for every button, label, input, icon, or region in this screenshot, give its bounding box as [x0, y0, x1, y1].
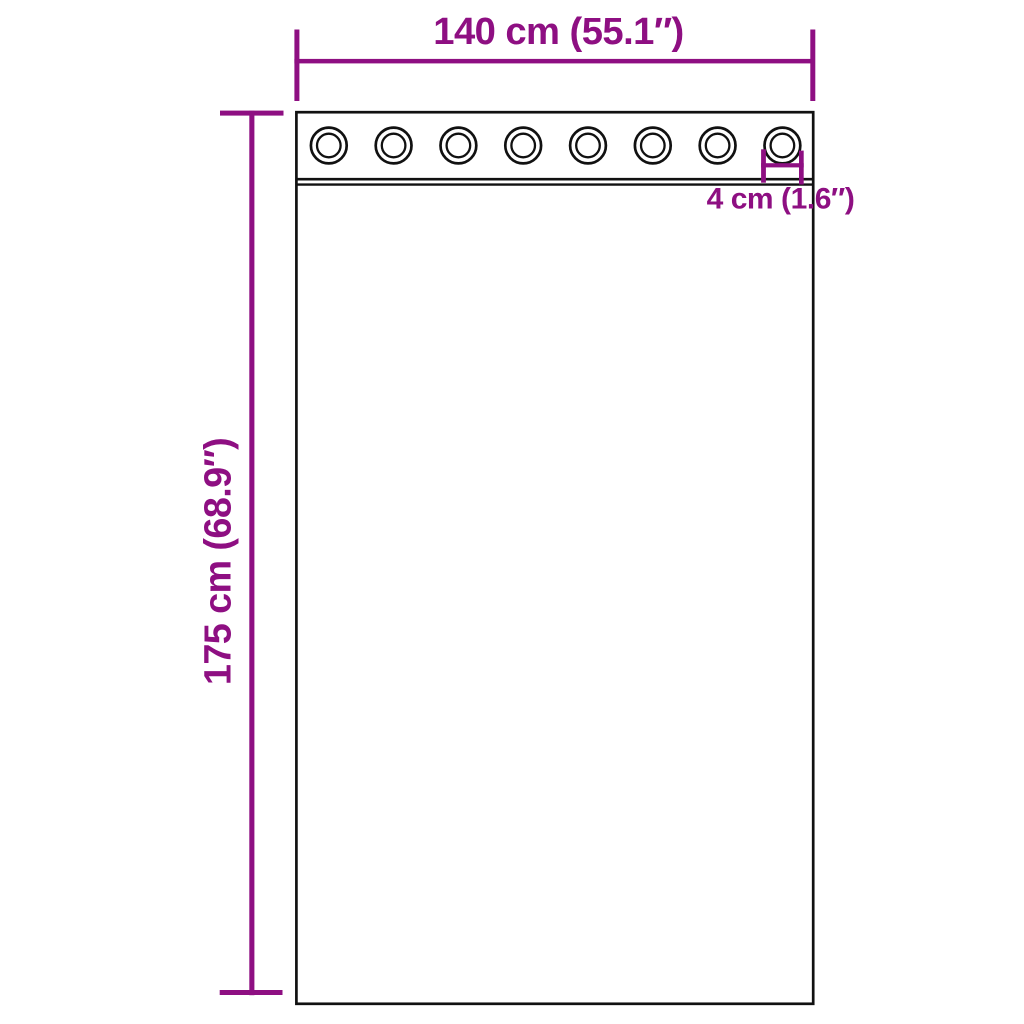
- svg-text:4 cm (1.6″): 4 cm (1.6″): [707, 183, 855, 216]
- svg-text:140 cm (55.1″): 140 cm (55.1″): [433, 10, 683, 53]
- svg-text:175 cm (68.9″): 175 cm (68.9″): [197, 438, 239, 685]
